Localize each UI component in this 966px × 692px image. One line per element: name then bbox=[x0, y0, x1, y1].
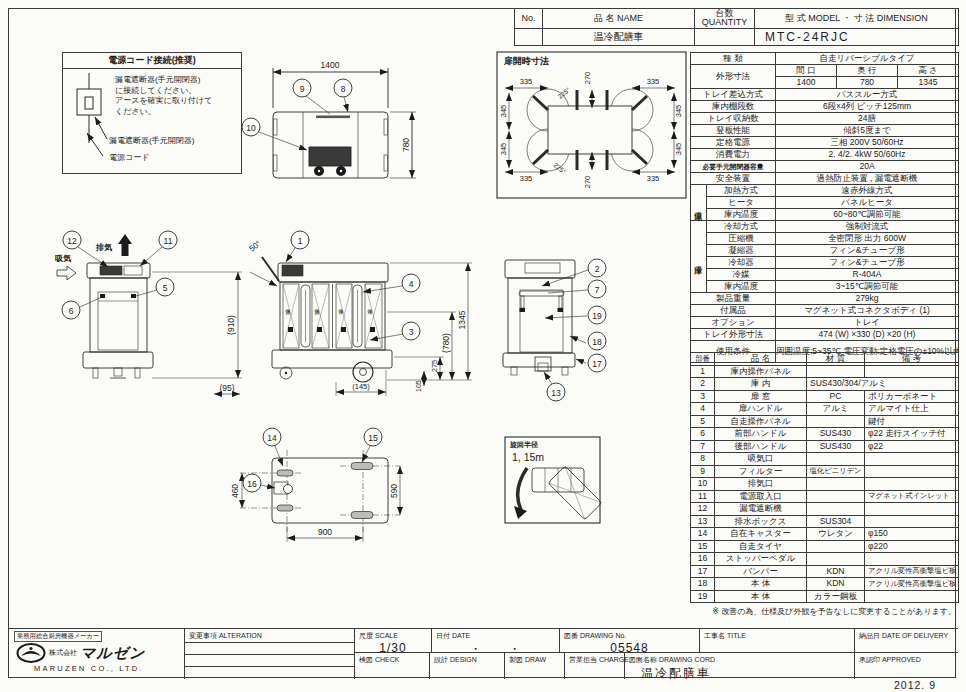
charge-label: 営業担当 CHARGE bbox=[565, 653, 624, 665]
spec-value: 過熱防止装置 , 漏電遮断機 bbox=[776, 173, 959, 185]
spec-value: 傾斜5度まで bbox=[776, 125, 959, 137]
spec-value: パネルヒータ bbox=[776, 197, 959, 209]
parts-row: 7後部ハンドルSUS430φ22 bbox=[691, 440, 959, 453]
spec-label: 圧縮機 bbox=[707, 233, 776, 245]
parts-row: 14自在キャスターウレタンφ150 bbox=[691, 528, 959, 541]
intake-arrow-icon bbox=[57, 266, 76, 280]
spec-label: トレイ外形寸法 bbox=[691, 329, 776, 341]
alteration-label: 変更事項 ALTERATION bbox=[185, 629, 354, 641]
charge-cell: 営業担当 CHARGE bbox=[565, 653, 625, 679]
approved-label: 承認印 APPROVED bbox=[855, 653, 958, 665]
parts-row: 18本 体KDNアクリル変性高衝撃塩ビ板 bbox=[691, 578, 959, 591]
spec-value: 279kg bbox=[776, 293, 959, 305]
title-block: 業務用総合厨房機器メーカー 株式会社マルゼン MARUZEN CO., LTD.… bbox=[8, 628, 958, 678]
spec-value: 遠赤外線方式 bbox=[776, 185, 959, 197]
spec-sublabel: 間 口 bbox=[776, 65, 837, 77]
header-name-label: 品 名 NAME bbox=[543, 9, 695, 29]
spec-label: 必要手元開閉器容量 bbox=[691, 161, 776, 173]
header-no-label: No. bbox=[515, 9, 543, 29]
approved-cell: 承認印 APPROVED bbox=[855, 653, 958, 679]
parts-row: 9フィルター塩化ビニリデン bbox=[691, 465, 959, 478]
side-view-drawing: 2 7 19 18 17 13 bbox=[503, 259, 606, 401]
spec-value: トレイ bbox=[776, 317, 959, 329]
callout-14: 14 bbox=[267, 433, 277, 443]
spec-value: 6段×4列 ピッチ125mm bbox=[776, 101, 959, 113]
callout-17: 17 bbox=[592, 359, 602, 369]
spec-label: 登板性能 bbox=[691, 125, 776, 137]
dim-label: 270 bbox=[583, 176, 592, 189]
dim-label: 590 bbox=[389, 484, 399, 498]
drawing-sheet: 1400 780 9 8 10 bbox=[0, 0, 966, 692]
spec-label: 消費電力 bbox=[691, 149, 776, 161]
title-label: 工事名 TITLE bbox=[700, 629, 854, 641]
scale-cell: 尺度 SCALE 1/30 bbox=[355, 629, 432, 653]
dim-label: 345 bbox=[499, 105, 508, 118]
company-prefix: 株式会社 bbox=[49, 648, 77, 658]
spec-sublabel: 奥 行 bbox=[837, 65, 898, 77]
spec-value: 1345 bbox=[898, 77, 959, 89]
spec-value: 1400 bbox=[776, 77, 837, 89]
spec-label: 庫内棚段数 bbox=[691, 101, 776, 113]
model-number: MTC-24RJC bbox=[755, 28, 959, 45]
spec-label: 加熱方式 bbox=[707, 185, 776, 197]
spec-label: トレイ差込方式 bbox=[691, 89, 776, 101]
callout-19: 19 bbox=[592, 311, 602, 321]
delivery-label: 納品日 DATE OF DELIVERY bbox=[855, 629, 958, 641]
spec-value: マグネット式コネクタボディ (1) bbox=[776, 305, 959, 317]
parts-row: 4扉ハンドルアルミアルマイト仕上 bbox=[691, 403, 959, 416]
company-block: 業務用総合厨房機器メーカー 株式会社マルゼン MARUZEN CO., LTD. bbox=[8, 629, 185, 679]
spec-value: フィン&チューブ形 bbox=[776, 245, 959, 257]
dim-label: 275 bbox=[430, 360, 439, 373]
dim-label: 335 bbox=[520, 174, 533, 183]
header-model-label: 型 式 MODEL ・ 寸 法 DIMENSION bbox=[755, 9, 959, 29]
spec-label: 庫内温度 bbox=[707, 281, 776, 293]
draw-cell: 製図 DRAW bbox=[505, 653, 565, 679]
callout-12: 12 bbox=[67, 236, 77, 246]
top-view-drawing: 1400 780 9 8 10 bbox=[242, 60, 416, 178]
dim-label: 105 bbox=[415, 380, 422, 392]
date-label: 日付 DATE bbox=[432, 629, 559, 641]
turning-title: 旋回半径 bbox=[509, 441, 538, 449]
spec-label: 製品重量 bbox=[691, 293, 776, 305]
parts-header-material: 材 質 bbox=[807, 353, 865, 366]
parts-header-name: 品 名 bbox=[715, 353, 807, 366]
dim-label: 335 bbox=[647, 77, 660, 86]
spec-label: 庫内温度 bbox=[707, 209, 776, 221]
power-note-body: 漏電遮断器(手元開閉器) に接続してください。 アースを確実に取り付けて くださ… bbox=[115, 75, 239, 117]
alteration-cell: 変更事項 ALTERATION bbox=[185, 629, 355, 679]
parts-row: 16ストッパーペダル bbox=[691, 553, 959, 566]
spec-value: 20A bbox=[776, 161, 959, 173]
exhaust-arrow-icon bbox=[118, 234, 132, 256]
dim-label: 345 bbox=[674, 143, 683, 156]
maruzen-logo-icon bbox=[16, 643, 46, 663]
parts-row: 8吸気口 bbox=[691, 453, 959, 466]
disclaimer-note: ※ 改善の為、仕様及び外観を予告なしに変更することがあります。 bbox=[690, 606, 956, 617]
spec-label: 付属品 bbox=[691, 305, 776, 317]
spec-group-cold: 保冷庫 bbox=[691, 221, 707, 293]
parts-row: 10排気口 bbox=[691, 478, 959, 491]
spec-value: フィン&チューブ形 bbox=[776, 257, 959, 269]
spec-label: 凝縮器 bbox=[707, 245, 776, 257]
angle-label: 225° bbox=[552, 161, 567, 175]
parts-row: 3扉 窓PCポリカーボネート bbox=[691, 390, 959, 403]
door-open-diagram: 扉開時寸法 335 335 270 345 345 345 bbox=[497, 52, 686, 198]
dim-label: 460 bbox=[230, 484, 240, 498]
delivery-cell: 納品日 DATE OF DELIVERY bbox=[855, 629, 958, 653]
parts-header-remark: 備 考 bbox=[865, 353, 959, 366]
drawing-name-cell: 図面名称 DRAWING CORD 温冷配膳車 bbox=[625, 653, 855, 679]
parts-row: 17バンパーKDNアクリル変性高衝撃塩ビ板 bbox=[691, 565, 959, 578]
header-no-value bbox=[515, 28, 543, 45]
dim-label: 335 bbox=[520, 77, 533, 86]
parts-header-no: 部番 bbox=[691, 353, 715, 366]
design-label: 設計 DESIGN bbox=[430, 653, 504, 665]
spec-label: ヒータ bbox=[707, 197, 776, 209]
spec-value: 24膳 bbox=[776, 113, 959, 125]
product-name: 温冷配膳車 bbox=[543, 28, 695, 45]
spec-value: 三相 200V 50/60Hz bbox=[776, 137, 959, 149]
angle-label: 225° bbox=[556, 86, 571, 100]
header-qty-label: 台数 QUANTITY bbox=[695, 9, 755, 29]
spec-label: トレイ収納数 bbox=[691, 113, 776, 125]
company-name-en: MARUZEN CO., LTD. bbox=[34, 664, 184, 673]
callout-13: 13 bbox=[551, 388, 561, 398]
spec-value: パススルー方式 bbox=[776, 89, 959, 101]
vent-grill bbox=[309, 147, 351, 166]
dim-label: 345 bbox=[499, 143, 508, 156]
parts-row: 5自走操作パネル鍵付 bbox=[691, 415, 959, 428]
spec-label: オプション bbox=[691, 317, 776, 329]
front-view-drawing: 1 保温 保温 保冷 保冷 bbox=[248, 231, 472, 396]
callout-16: 16 bbox=[247, 479, 257, 489]
callout-1: 1 bbox=[298, 236, 303, 246]
roof-slot bbox=[316, 116, 350, 119]
company-tagline: 業務用総合厨房機器メーカー bbox=[14, 631, 102, 642]
dim-label: 780 bbox=[401, 138, 411, 152]
dim-label: 1400 bbox=[321, 60, 340, 70]
dim-label: 335 bbox=[647, 174, 660, 183]
callout-15: 15 bbox=[368, 433, 378, 443]
spec-label: 冷却器 bbox=[707, 257, 776, 269]
spec-value: 3~15℃調節可能 bbox=[776, 281, 959, 293]
callout-11: 11 bbox=[164, 236, 173, 246]
spec-value: 自走リバーシブルタイプ bbox=[776, 53, 959, 65]
dim-label: 1345 bbox=[457, 310, 467, 329]
callout-9: 9 bbox=[300, 84, 305, 94]
parts-row: 1庫内操作パネル bbox=[691, 365, 959, 378]
parts-row: 11電源取入口マグネット式インレット bbox=[691, 490, 959, 503]
power-note-title: 電源コード接続(推奨) bbox=[63, 53, 241, 69]
callout-4: 4 bbox=[409, 279, 414, 289]
dim-label: (145) bbox=[352, 382, 370, 391]
spec-table: 種 類自走リバーシブルタイプ 外形寸法間 口奥 行高 さ 14007801345… bbox=[690, 52, 959, 363]
callout-10: 10 bbox=[246, 123, 256, 133]
parts-row: 12漏電遮断機 bbox=[691, 503, 959, 516]
spec-label: 冷媒 bbox=[707, 269, 776, 281]
parts-table: 部番 品 名 材 質 備 考 1庫内操作パネル 2庫 内SUS430/304/ア… bbox=[690, 352, 959, 603]
angle-label: 50° bbox=[248, 239, 263, 254]
callout-2: 2 bbox=[595, 264, 600, 274]
exhaust-label: 排気 bbox=[95, 243, 113, 252]
header-qty-value bbox=[695, 28, 755, 45]
issue-date: 2012. 9 bbox=[894, 679, 936, 691]
dim-label: (95) bbox=[219, 383, 234, 393]
dim-label: 900 bbox=[318, 527, 332, 537]
callout-18: 18 bbox=[592, 337, 602, 347]
callout-5: 5 bbox=[163, 283, 168, 293]
intake-label: 吸気 bbox=[55, 254, 72, 263]
parts-row: 13排水ボックスSUS304 bbox=[691, 515, 959, 528]
spec-value: 全密閉形 出力 600W bbox=[776, 233, 959, 245]
spec-group-hot: 保温庫 bbox=[691, 185, 707, 221]
scale-label: 尺度 SCALE bbox=[355, 629, 431, 641]
spec-value: 474 (W) ×330 (D) ×20 (H) bbox=[776, 329, 959, 341]
rear-view-drawing: 排気 吸気 12 11 5 6 (910) (95) bbox=[55, 231, 242, 394]
company-name: マルゼン bbox=[80, 644, 145, 663]
spec-label: 種 類 bbox=[691, 53, 776, 65]
spec-label: 外形寸法 bbox=[691, 65, 776, 89]
spec-label: 定格電源 bbox=[691, 137, 776, 149]
callout-3: 3 bbox=[409, 327, 414, 337]
spec-value: R-404A bbox=[776, 269, 959, 281]
power-cord-note: 電源コード接続(推奨) 漏電遮断器(手元開閉器) に接続してください。 アースを… bbox=[62, 52, 242, 174]
spec-value: 780 bbox=[837, 77, 898, 89]
check-cell: 検図 CHECK bbox=[355, 653, 430, 679]
turning-value: 1, 15m bbox=[512, 451, 544, 463]
parts-row: 19本 体カラー鋼板 bbox=[691, 590, 959, 603]
dim-label: (780) bbox=[441, 333, 451, 353]
dim-label: (910) bbox=[226, 315, 236, 335]
date-cell: 日付 DATE ・ ・ bbox=[432, 629, 560, 653]
draw-label: 製図 DRAW bbox=[505, 653, 564, 665]
spec-label: 安全装置 bbox=[691, 173, 776, 185]
spec-value: 強制対流式 bbox=[776, 221, 959, 233]
callout-8: 8 bbox=[341, 84, 346, 94]
dim-label: 270 bbox=[583, 72, 592, 85]
parts-row: 15自走タイヤφ220 bbox=[691, 540, 959, 553]
callout-6: 6 bbox=[69, 306, 74, 316]
spec-label: 冷却方式 bbox=[707, 221, 776, 233]
parts-row: 6前部ハンドルSUS430φ22 走行スイッチ付 bbox=[691, 428, 959, 441]
header-table: No. 品 名 NAME 台数 QUANTITY 型 式 MODEL ・ 寸 法… bbox=[514, 8, 959, 46]
drawing-no-cell: 図番 DRAWING No. 05548 bbox=[560, 629, 700, 653]
design-cell: 設計 DESIGN bbox=[430, 653, 505, 679]
check-label: 検図 CHECK bbox=[355, 653, 429, 665]
drawing-no-label: 図番 DRAWING No. bbox=[560, 629, 699, 641]
title-cell: 工事名 TITLE bbox=[700, 629, 855, 653]
chassis-plan-drawing: 460 590 900 14 15 16 bbox=[230, 428, 400, 542]
parts-row: 2庫 内SUS430/304/アルミ bbox=[691, 378, 959, 391]
spec-value: 60~80℃調節可能 bbox=[776, 209, 959, 221]
drawing-name-label: 図面名称 DRAWING CORD bbox=[625, 653, 854, 665]
drawing-name-value: 温冷配膳車 bbox=[625, 665, 854, 682]
breaker-label: 漏電遮断器(手元開閉器) bbox=[109, 135, 194, 146]
cord-label: 電源コード bbox=[109, 152, 149, 163]
dim-label: 345 bbox=[674, 105, 683, 118]
spec-sublabel: 高 さ bbox=[898, 65, 959, 77]
callout-7: 7 bbox=[595, 285, 600, 295]
turning-radius-diagram: 旋回半径 1, 15m bbox=[505, 437, 602, 523]
door-open-title: 扉開時寸法 bbox=[503, 55, 549, 66]
spec-value: 2. 4/2. 4kW 50/60Hz bbox=[776, 149, 959, 161]
